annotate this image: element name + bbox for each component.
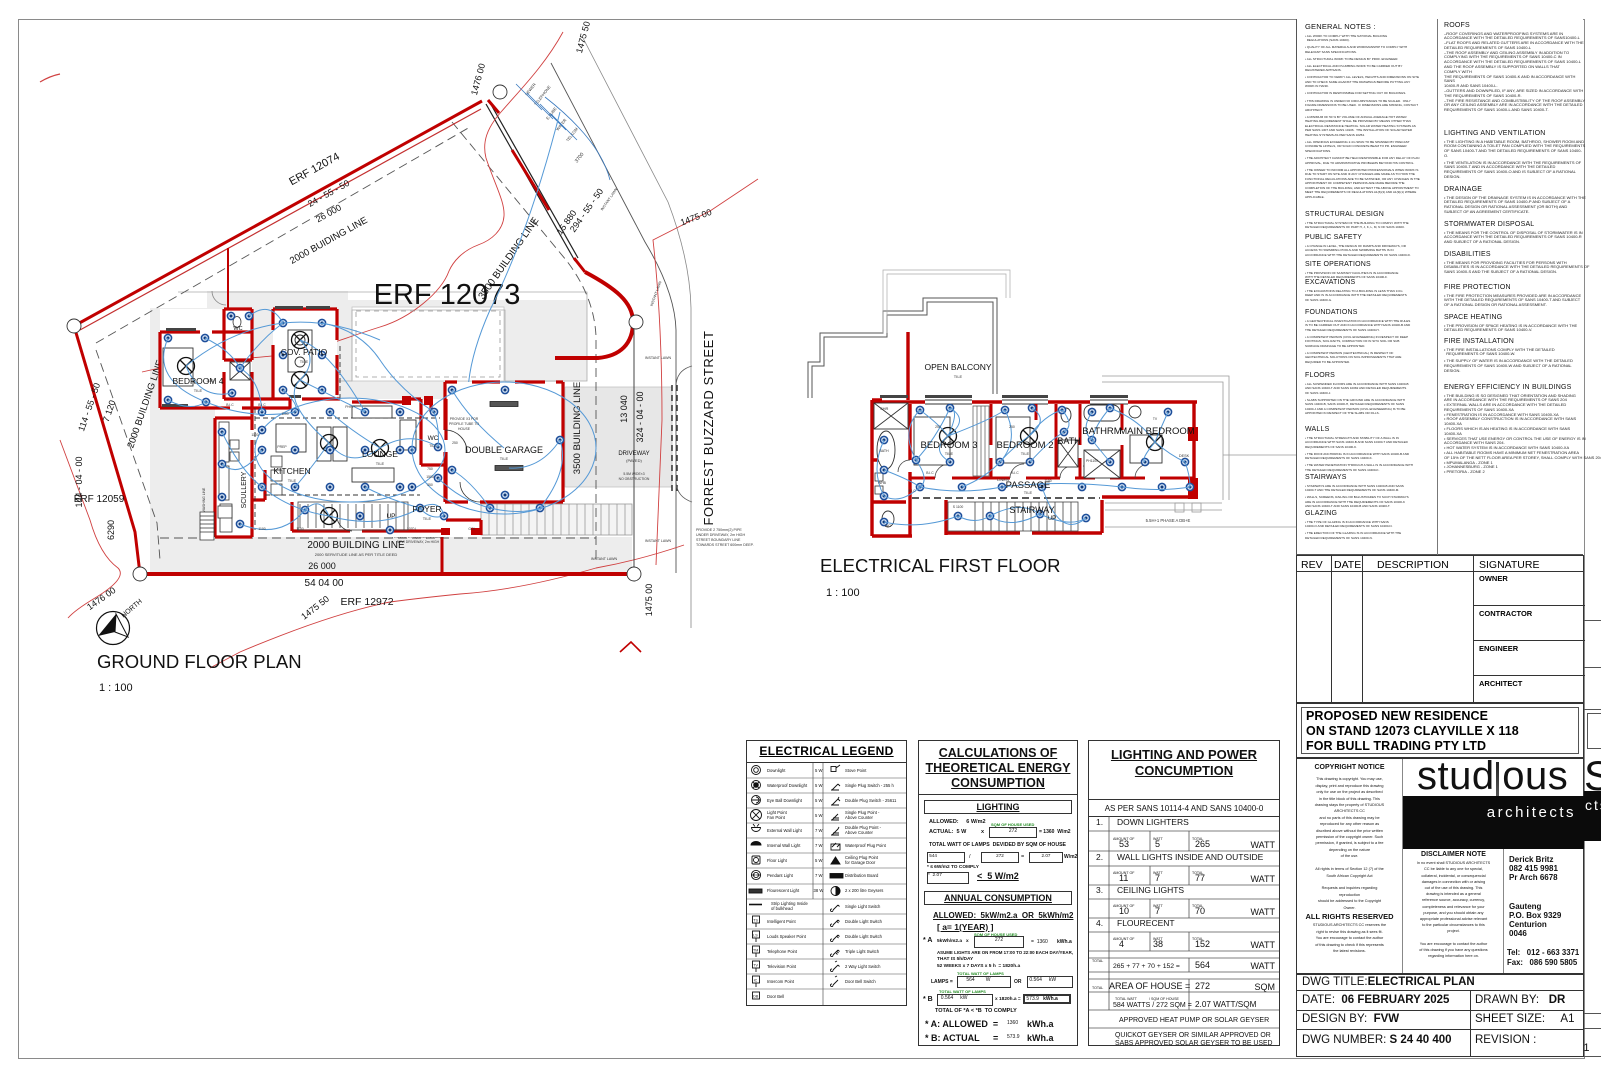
svg-text:TOTAL: TOTAL bbox=[1092, 986, 1103, 990]
svg-text:54 04 00: 54 04 00 bbox=[305, 578, 344, 589]
svg-text:Flourescent Light: Flourescent Light bbox=[767, 888, 800, 893]
svg-text:2.: 2. bbox=[1096, 852, 1103, 862]
svg-text:B.I.C: B.I.C bbox=[226, 403, 234, 407]
svg-text:Pendant Light: Pendant Light bbox=[767, 873, 794, 878]
svg-text:5 W: 5 W bbox=[815, 798, 822, 803]
svg-text:APPROVED HEAT PUMP OR SOLAR GE: APPROVED HEAT PUMP OR SOLAR GEYSER bbox=[1119, 1017, 1269, 1024]
svg-text:272: 272 bbox=[1195, 981, 1210, 991]
svg-text:70: 70 bbox=[1195, 906, 1205, 916]
svg-text:1 : 100: 1 : 100 bbox=[826, 587, 860, 599]
svg-text:NORTH: NORTH bbox=[120, 598, 143, 619]
svg-text:BEDROOM 3: BEDROOM 3 bbox=[920, 440, 977, 451]
svg-text:B.I.C: B.I.C bbox=[1011, 471, 1019, 475]
svg-text:Downlight: Downlight bbox=[767, 768, 786, 773]
svg-text:3500 BUILDING LINE: 3500 BUILDING LINE bbox=[572, 382, 583, 474]
svg-text:7 W: 7 W bbox=[815, 873, 822, 878]
svg-text:TS: TS bbox=[753, 919, 758, 923]
svg-text:38 W: 38 W bbox=[814, 888, 824, 893]
svg-text:SCULLERY: SCULLERY bbox=[241, 471, 248, 508]
svg-text:WC: WC bbox=[233, 326, 242, 332]
svg-text:Above Counter: Above Counter bbox=[845, 830, 874, 835]
svg-text:2000 BUIDING LINE: 2000 BUIDING LINE bbox=[288, 215, 370, 267]
svg-text:of bulkhead: of bulkhead bbox=[771, 906, 793, 911]
svg-text:AMOUNT OF: AMOUNT OF bbox=[1113, 937, 1135, 941]
svg-text:B.I.C: B.I.C bbox=[926, 471, 934, 475]
svg-text:INSTANT LAWN: INSTANT LAWN bbox=[650, 280, 663, 306]
svg-text:BATHRM: BATHRM bbox=[1082, 426, 1121, 437]
svg-text:250: 250 bbox=[452, 441, 458, 445]
svg-text:584 WATTS / 272 SQM =: 584 WATTS / 272 SQM = bbox=[1113, 1002, 1192, 1009]
svg-text:2 x 200 litre Geysers: 2 x 200 litre Geysers bbox=[845, 888, 883, 893]
svg-text:UP: UP bbox=[1048, 516, 1056, 522]
svg-text:250: 250 bbox=[935, 425, 941, 429]
svg-text:TOTAL WATT: TOTAL WATT bbox=[1115, 997, 1138, 1001]
svg-text:IC: IC bbox=[754, 979, 758, 983]
svg-text:STREET BOUNDARY LINE: STREET BOUNDARY LINE bbox=[696, 538, 741, 542]
svg-text:CEILING LIGHTS: CEILING LIGHTS bbox=[1117, 885, 1184, 895]
svg-text:INSTANT LAWN: INSTANT LAWN bbox=[645, 539, 672, 543]
svg-text:TILE: TILE bbox=[954, 374, 963, 379]
svg-text:1100: 1100 bbox=[296, 527, 303, 531]
svg-text:DRIVEWAY: DRIVEWAY bbox=[618, 451, 649, 457]
svg-text:WATT: WATT bbox=[1251, 961, 1276, 971]
svg-text:1.: 1. bbox=[1096, 817, 1103, 827]
svg-text:TILE: TILE bbox=[376, 461, 385, 466]
svg-text:7 W: 7 W bbox=[815, 828, 822, 833]
svg-text:LINEN: LINEN bbox=[997, 477, 1009, 482]
svg-text:1475 00: 1475 00 bbox=[644, 584, 654, 617]
svg-text:External Wall Light: External Wall Light bbox=[767, 828, 803, 833]
svg-text:2000 BUILDING LINE: 2000 BUILDING LINE bbox=[307, 540, 405, 551]
svg-text:Intercom Point: Intercom Point bbox=[767, 979, 795, 984]
svg-text:7 W: 7 W bbox=[815, 843, 822, 848]
svg-text:TILE: TILE bbox=[288, 478, 297, 483]
svg-text:WHB: WHB bbox=[878, 481, 887, 485]
svg-text:Floor Light: Floor Light bbox=[767, 858, 788, 863]
svg-text:DOUBLE GARAGE: DOUBLE GARAGE bbox=[465, 445, 543, 455]
svg-text:ERF 12059: ERF 12059 bbox=[74, 494, 125, 505]
svg-text:Double Plug Switch - 25611: Double Plug Switch - 25611 bbox=[845, 798, 897, 803]
svg-text:5: 5 bbox=[1155, 839, 1160, 849]
svg-text:265: 265 bbox=[1195, 839, 1210, 849]
svg-text:Louds Speaker Point: Louds Speaker Point bbox=[767, 934, 807, 939]
svg-text:5.5M WIDE×3: 5.5M WIDE×3 bbox=[623, 472, 644, 476]
svg-text:Intelligent Point: Intelligent Point bbox=[767, 919, 796, 924]
svg-text:GROUND FLOOR PLAN: GROUND FLOOR PLAN bbox=[97, 651, 302, 672]
svg-text:294 - 55 - 50: 294 - 55 - 50 bbox=[568, 187, 605, 235]
svg-text:PROVIDE X3 FOR: PROVIDE X3 FOR bbox=[450, 417, 479, 421]
svg-text:TILE: TILE bbox=[423, 516, 432, 521]
svg-text:for Garage Door: for Garage Door bbox=[845, 860, 876, 865]
svg-text:BATH: BATH bbox=[1057, 436, 1080, 446]
svg-text:26 000: 26 000 bbox=[308, 561, 336, 571]
svg-text:(PAVED): (PAVED) bbox=[626, 458, 642, 463]
svg-text:Fan Point: Fan Point bbox=[767, 815, 786, 820]
svg-text:Telephone Point: Telephone Point bbox=[767, 949, 798, 954]
svg-text:1475 50: 1475 50 bbox=[574, 20, 592, 54]
svg-text:B.I.C: B.I.C bbox=[908, 489, 916, 493]
svg-text:HOUSE: HOUSE bbox=[458, 427, 471, 431]
svg-text:S 1100: S 1100 bbox=[953, 505, 964, 509]
svg-text:11: 11 bbox=[1119, 873, 1128, 883]
svg-text:DESK: DESK bbox=[1179, 454, 1190, 458]
svg-text:38: 38 bbox=[1153, 939, 1163, 949]
svg-text:WC: WC bbox=[428, 435, 439, 442]
svg-text:7: 7 bbox=[1155, 906, 1160, 916]
svg-text:TILE: TILE bbox=[945, 451, 954, 456]
svg-text:Waterproof Downlight: Waterproof Downlight bbox=[767, 783, 808, 788]
svg-text:WATT: WATT bbox=[1251, 874, 1276, 884]
svg-text:TV: TV bbox=[1153, 417, 1158, 421]
svg-text:Double Light Switch: Double Light Switch bbox=[845, 934, 883, 939]
svg-text:7: 7 bbox=[1155, 873, 1160, 883]
svg-text:AREA OF HOUSE =: AREA OF HOUSE = bbox=[1109, 981, 1190, 991]
svg-text:UNDER DRIVEWAY, 2m HIGH: UNDER DRIVEWAY, 2m HIGH bbox=[696, 533, 745, 537]
svg-text:OPEN BALCONY: OPEN BALCONY bbox=[924, 362, 991, 372]
svg-text:INSTANT LAWN: INSTANT LAWN bbox=[645, 356, 672, 360]
svg-text:3700: 3700 bbox=[574, 152, 586, 165]
svg-text:1 : 100: 1 : 100 bbox=[99, 682, 133, 694]
svg-text:5 W: 5 W bbox=[815, 768, 822, 773]
svg-text:Single Plug Switch - 255 h: Single Plug Switch - 255 h bbox=[845, 783, 895, 788]
svg-text:750: 750 bbox=[427, 467, 433, 471]
svg-text:INSTANT LAWN: INSTANT LAWN bbox=[591, 557, 618, 561]
svg-text:PROVIDE 2 750mm(2) PIPE: PROVIDE 2 750mm(2) PIPE bbox=[696, 528, 742, 532]
svg-text:DB: DB bbox=[753, 995, 759, 999]
svg-text:BATH: BATH bbox=[879, 449, 889, 453]
svg-text:LOUNGE: LOUNGE bbox=[362, 449, 398, 459]
svg-text:1100: 1100 bbox=[281, 412, 288, 416]
svg-text:Distribution Board: Distribution Board bbox=[845, 873, 879, 878]
svg-text:WATT: WATT bbox=[1251, 907, 1276, 917]
svg-text:77: 77 bbox=[1195, 873, 1205, 883]
svg-text:TM: TM bbox=[753, 949, 758, 953]
svg-text:TILE: TILE bbox=[300, 359, 309, 364]
svg-text:TV: TV bbox=[753, 964, 758, 968]
svg-text:SQM: SQM bbox=[1254, 982, 1275, 992]
svg-text:NEW DRIVEWAY, 2m HIGH: NEW DRIVEWAY, 2m HIGH bbox=[397, 540, 440, 544]
svg-text:4: 4 bbox=[1119, 939, 1124, 949]
svg-text:10: 10 bbox=[1119, 906, 1129, 916]
svg-text:1500: 1500 bbox=[426, 475, 434, 479]
svg-text:Above Counter: Above Counter bbox=[845, 815, 874, 820]
svg-text:Waterproof Plug Point: Waterproof Plug Point bbox=[845, 843, 887, 848]
svg-text:1475 50: 1475 50 bbox=[299, 594, 331, 622]
svg-text:5 W: 5 W bbox=[815, 858, 822, 863]
svg-text:Door Bell: Door Bell bbox=[767, 994, 784, 999]
svg-text:TILE: TILE bbox=[500, 456, 509, 461]
svg-text:UP: UP bbox=[386, 513, 395, 520]
svg-text:KITCHEN: KITCHEN bbox=[273, 466, 310, 476]
svg-text:5 W: 5 W bbox=[815, 813, 822, 818]
svg-text:1070 L: 1070 L bbox=[407, 527, 417, 531]
svg-text:Door Bell Switch: Door Bell Switch bbox=[845, 979, 876, 984]
svg-text:Double Light Switch: Double Light Switch bbox=[845, 919, 883, 924]
svg-text:GOL: GOL bbox=[468, 527, 475, 531]
svg-text:265 + 77 + 70 + 152 =: 265 + 77 + 70 + 152 = bbox=[1113, 963, 1180, 970]
svg-text:26 000: 26 000 bbox=[314, 202, 343, 224]
svg-text:6290: 6290 bbox=[106, 520, 116, 540]
svg-text:B.I.C: B.I.C bbox=[258, 403, 266, 407]
svg-text:564: 564 bbox=[1195, 960, 1210, 970]
svg-text:Eye Ball Downlight: Eye Ball Downlight bbox=[767, 798, 803, 803]
svg-text:BEDROOM 2: BEDROOM 2 bbox=[996, 440, 1053, 451]
svg-text:1100: 1100 bbox=[258, 527, 265, 531]
svg-text:PROFILE TUBE TO: PROFILE TUBE TO bbox=[449, 422, 479, 426]
svg-text:53: 53 bbox=[1119, 839, 1129, 849]
svg-text:FOYER: FOYER bbox=[412, 504, 441, 514]
svg-text:ERF 12073: ERF 12073 bbox=[374, 279, 521, 311]
svg-text:TILE: TILE bbox=[1021, 451, 1030, 456]
svg-text:2.07 WATT/SQM: 2.07 WATT/SQM bbox=[1195, 1000, 1257, 1009]
svg-text:324 - 04 - 00: 324 - 04 - 00 bbox=[635, 391, 645, 442]
svg-text:350: 350 bbox=[427, 483, 433, 487]
svg-text:/ SQM OF HOUSE: / SQM OF HOUSE bbox=[1149, 997, 1180, 1001]
svg-text:1100: 1100 bbox=[206, 379, 213, 383]
svg-text:TILE: TILE bbox=[429, 444, 437, 448]
svg-text:FORREST BUZZARD STREET: FORREST BUZZARD STREET bbox=[701, 331, 716, 526]
svg-text:13 040: 13 040 bbox=[619, 395, 629, 423]
svg-text:SABS APPROVED SOLAR GEYSER TO: SABS APPROVED SOLAR GEYSER TO BE USED bbox=[1115, 1040, 1273, 1045]
svg-text:STAIRWAY: STAIRWAY bbox=[1009, 505, 1054, 515]
svg-text:COV. PATIO: COV. PATIO bbox=[281, 347, 328, 357]
svg-text:1475 00: 1475 00 bbox=[679, 207, 713, 228]
svg-text:Internal Wall Light: Internal Wall Light bbox=[767, 843, 801, 848]
svg-text:ERF 12972: ERF 12972 bbox=[340, 596, 393, 608]
svg-text:1476 00: 1476 00 bbox=[469, 62, 487, 96]
svg-text:BEDROOM 4: BEDROOM 4 bbox=[172, 376, 223, 386]
svg-text:2000 SERVITUDE LINE AS PER TIT: 2000 SERVITUDE LINE AS PER TITLE DEED bbox=[315, 552, 398, 557]
svg-text:4.: 4. bbox=[1096, 918, 1103, 928]
svg-text:QUICKOT GEYSER OR SIMILAR APPR: QUICKOT GEYSER OR SIMILAR APPROVED OR bbox=[1115, 1032, 1271, 1039]
svg-text:PREP: PREP bbox=[277, 445, 287, 449]
svg-text:SHR: SHR bbox=[880, 406, 889, 411]
svg-text:1100: 1100 bbox=[251, 433, 258, 437]
svg-text:250: 250 bbox=[1009, 425, 1015, 429]
svg-text:5 W: 5 W bbox=[815, 783, 822, 788]
svg-text:Television Point: Television Point bbox=[767, 964, 797, 969]
svg-text:LS: LS bbox=[753, 934, 758, 938]
svg-text:WALL LIGHTS INSIDE AND OUTSIDE: WALL LIGHTS INSIDE AND OUTSIDE bbox=[1117, 852, 1264, 862]
svg-text:FLOURECENT: FLOURECENT bbox=[1117, 918, 1175, 928]
svg-text:TILE: TILE bbox=[1024, 490, 1033, 495]
svg-text:1476 00: 1476 00 bbox=[85, 585, 117, 612]
svg-text:7 120: 7 120 bbox=[101, 399, 118, 424]
svg-text:WATT: WATT bbox=[1251, 940, 1276, 950]
svg-text:152: 152 bbox=[1195, 939, 1210, 949]
svg-text:5.5H+1 PHASE A DB+E: 5.5H+1 PHASE A DB+E bbox=[1146, 518, 1191, 523]
svg-text:MAIN BEDROOM: MAIN BEDROOM bbox=[1119, 426, 1195, 437]
svg-text:TOTAL: TOTAL bbox=[1092, 959, 1103, 963]
svg-text:1100: 1100 bbox=[1044, 479, 1051, 483]
svg-text:NO OBSTRUCTION: NO OBSTRUCTION bbox=[619, 477, 650, 481]
svg-text:TILE: TILE bbox=[194, 388, 203, 393]
svg-text:Triple Light Switch: Triple Light Switch bbox=[845, 949, 880, 954]
svg-text:DOWN LIGHTERS: DOWN LIGHTERS bbox=[1117, 817, 1189, 827]
svg-text:PHHP: PHHP bbox=[345, 405, 355, 409]
svg-text:WASHING LINE: WASHING LINE bbox=[202, 487, 206, 512]
svg-text:3.: 3. bbox=[1096, 885, 1103, 895]
svg-text:WATT: WATT bbox=[1251, 840, 1276, 850]
svg-text:2 Way Light Switch: 2 Way Light Switch bbox=[845, 964, 881, 969]
svg-text:ELECTRICAL FIRST FLOOR: ELECTRICAL FIRST FLOOR bbox=[820, 555, 1061, 576]
svg-text:TOWARDS STREET 600mm DEEP.: TOWARDS STREET 600mm DEEP. bbox=[696, 543, 754, 547]
svg-text:Stove Point: Stove Point bbox=[845, 768, 867, 773]
svg-text:WC: WC bbox=[885, 524, 891, 528]
svg-text:PH1100: PH1100 bbox=[1086, 459, 1098, 463]
svg-text:Single Light Switch: Single Light Switch bbox=[845, 904, 881, 909]
